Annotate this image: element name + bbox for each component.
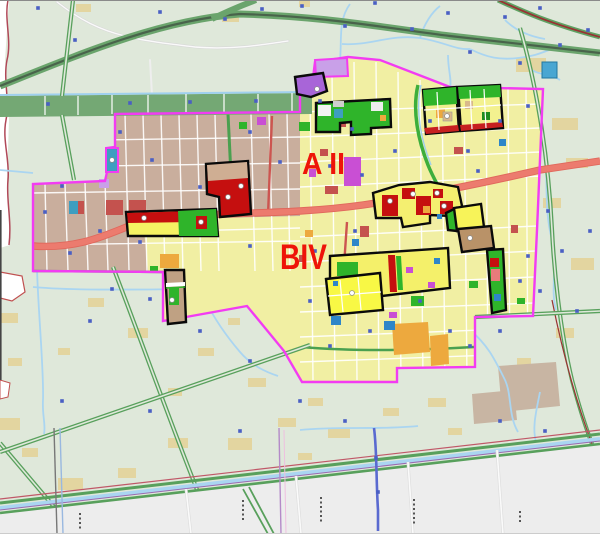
parcel-long-strip [126,209,218,236]
parcel-northeast-1 [423,87,459,134]
parcel-south-tan [165,270,186,324]
planning-map-canvas: A II BIV [0,0,600,534]
zone-label-a2: A II [302,146,345,181]
zone-label-b4: BIV [280,238,328,277]
parcel-violet [295,73,327,97]
map-viewport[interactable]: A II BIV [0,0,600,534]
parcel-northeast-2 [457,85,503,131]
pond [542,62,557,78]
